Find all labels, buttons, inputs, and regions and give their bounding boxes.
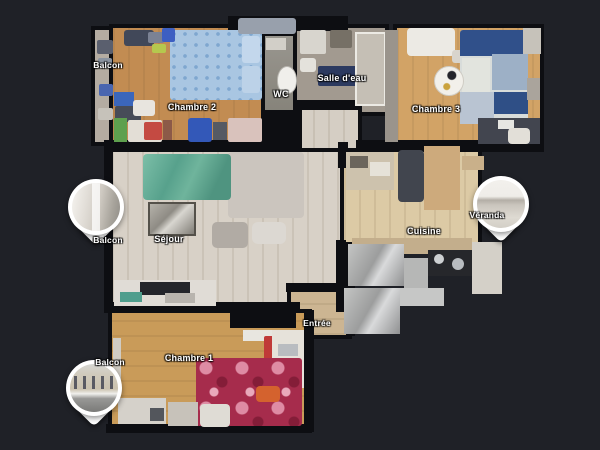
- sejour-sofa-teal: [143, 154, 231, 200]
- chambre2-clutter: [228, 118, 262, 142]
- chambre2-box: [114, 92, 134, 106]
- sejour-sofa-white: [228, 152, 304, 218]
- chambre3-round-table: [434, 66, 464, 96]
- cuisine-threshold: [462, 156, 484, 170]
- pin-label-balcon-chambre-1: Balcon: [95, 357, 125, 367]
- chambre2-clothes: [188, 118, 212, 142]
- room-label-wc: WC: [273, 89, 288, 99]
- cuisine-clutter: [370, 162, 390, 176]
- room-label-chambre-1: Chambre 1: [165, 353, 213, 363]
- sejour-tv-shelf-item: [165, 293, 195, 303]
- chambre2-clutter: [144, 122, 162, 140]
- cuisine-peninsula: [424, 146, 460, 210]
- wc-shelf: [266, 38, 286, 50]
- shower: [355, 32, 386, 106]
- wall: [286, 283, 350, 292]
- wall: [296, 100, 360, 110]
- hallway-floor[interactable]: [298, 108, 358, 154]
- pin-label-veranda: Véranda: [470, 210, 505, 220]
- cuisine-lower-right: [400, 288, 444, 306]
- pin-circle: [473, 176, 529, 232]
- room-label-chambre-2: Chambre 2: [168, 102, 216, 112]
- pin-label-balcon-sejour: Balcon: [93, 235, 123, 245]
- hanging-clothes: [238, 18, 296, 34]
- wall: [230, 302, 296, 328]
- salle-deau-clutter: [330, 30, 352, 48]
- salle-deau-sink: [300, 58, 316, 72]
- room-label-chambre-3: Chambre 3: [412, 104, 460, 114]
- wall: [304, 310, 314, 432]
- geometry-fragment: [527, 78, 540, 100]
- chambre2-pillow: [242, 66, 260, 93]
- cuisine-stools: [398, 150, 424, 202]
- chambre1-bag: [200, 404, 230, 427]
- chambre3-bed-plaid: [460, 30, 528, 56]
- cuisine-lower-block: [344, 288, 400, 334]
- chambre2-pillow: [242, 36, 260, 63]
- chambre2-bag: [162, 28, 175, 42]
- cuisine-pot: [434, 254, 444, 264]
- chambre2-clutter: [114, 118, 127, 142]
- chambre3-bed-plaid: [462, 58, 490, 92]
- pin-circle: [68, 179, 124, 235]
- washing-machine: [300, 30, 326, 54]
- chambre2-chair: [133, 100, 155, 116]
- pin-circle: [66, 360, 122, 416]
- room-label-sejour: Séjour: [154, 234, 183, 244]
- room-label-salle-deau: Salle d'eau: [318, 73, 367, 83]
- room-label-balcon-top: Balcon: [93, 60, 123, 70]
- chambre1-bed-pillow: [256, 386, 280, 402]
- sejour-pouf: [212, 222, 248, 248]
- chambre1-clutter: [168, 402, 198, 426]
- balcony-clutter: [99, 84, 113, 96]
- chambre3-chair2: [508, 128, 530, 144]
- cuisine-stove: [428, 250, 474, 276]
- sejour-coffee-table: [148, 202, 196, 236]
- wall: [262, 110, 302, 142]
- cuisine-clutter: [350, 156, 368, 168]
- floorplan-canvas[interactable]: Balcon Chambre 2 WC Salle d'eau Chambre …: [0, 0, 600, 450]
- chambre1-clutter: [150, 408, 164, 421]
- chambre2-clutter: [213, 122, 227, 140]
- cuisine-pot: [452, 258, 464, 270]
- pin-photo-veranda: [477, 180, 525, 228]
- room-label-entree: Entrée: [303, 318, 331, 328]
- pin-photo-balcon: [70, 364, 118, 412]
- wardrobe-strip: [385, 30, 398, 142]
- room-label-cuisine: Cuisine: [407, 226, 441, 236]
- cuisine-sink: [404, 258, 428, 292]
- chambre2-clutter: [163, 120, 172, 140]
- chambre3-bed-plaid: [494, 92, 528, 114]
- chambre1-laptop: [278, 344, 298, 356]
- chambre2-sneakers: [152, 44, 166, 53]
- balcony-clutter: [97, 40, 113, 54]
- chambre3-bed-plaid: [492, 54, 528, 90]
- pin-photo-balcon: [72, 183, 120, 231]
- balcony-clutter: [98, 108, 113, 120]
- cuisine-steel-counter: [348, 244, 404, 286]
- chambre3-desk: [407, 28, 455, 56]
- pin-balcon-chambre-1[interactable]: [66, 360, 122, 434]
- sejour-throw: [252, 222, 286, 244]
- geometry-fragment: [523, 28, 541, 54]
- sejour-tv-shelf-item: [120, 292, 142, 302]
